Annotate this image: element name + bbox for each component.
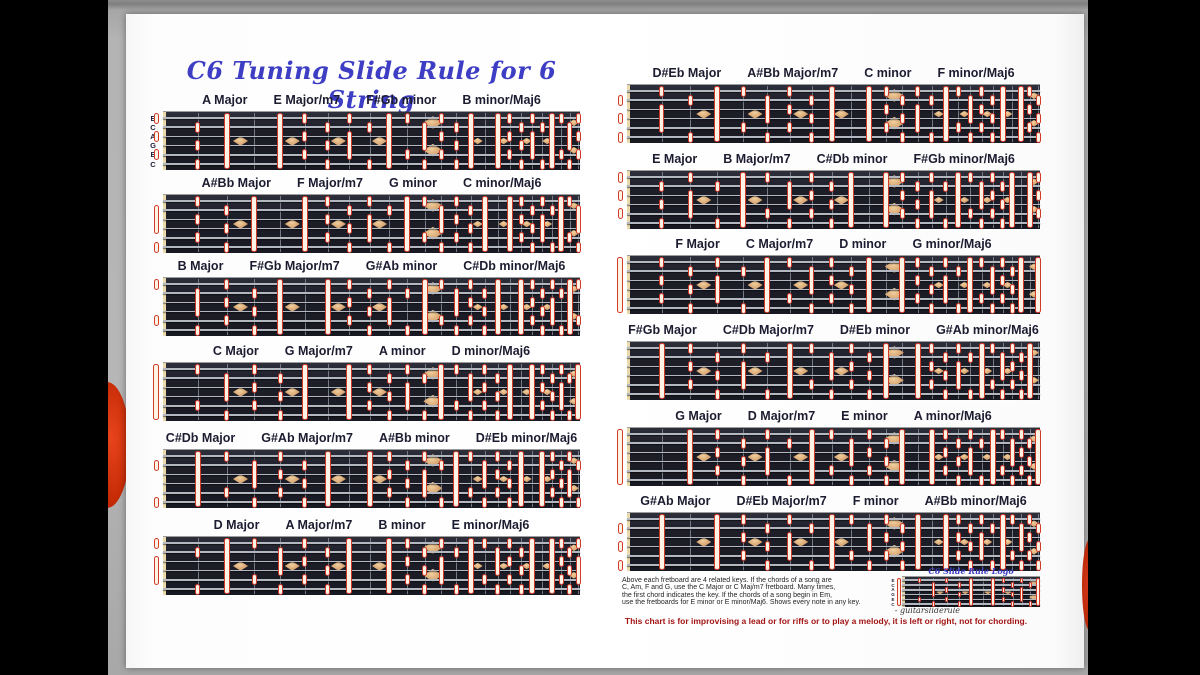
note-marker	[367, 382, 372, 393]
fret-wire	[690, 514, 691, 570]
scale-bar-marker	[883, 172, 889, 228]
note-marker	[540, 288, 545, 299]
note-marker	[387, 469, 392, 480]
note-marker	[550, 451, 555, 462]
note-marker	[195, 232, 200, 243]
chord-label-row: C MajorG Major/m7A minorD minor/Maj6	[163, 344, 580, 358]
fretboard	[163, 112, 580, 170]
fret-wire	[485, 113, 486, 169]
note-marker	[956, 122, 961, 133]
note-marker	[567, 584, 572, 595]
open-string-marker	[618, 541, 623, 552]
note-marker	[915, 257, 920, 268]
note-marker	[405, 364, 410, 375]
note-marker	[302, 131, 307, 142]
scale-bar-marker	[404, 196, 410, 252]
note-marker	[495, 584, 500, 595]
note-marker	[968, 541, 973, 552]
note-marker	[918, 578, 921, 584]
nut	[627, 85, 630, 143]
chord-label: D#Eb minor	[840, 323, 910, 337]
note-marker	[325, 122, 330, 133]
note-marker	[741, 266, 746, 277]
note-marker	[550, 391, 555, 402]
nut	[627, 171, 630, 229]
note-marker	[1010, 361, 1015, 372]
note-marker	[915, 86, 920, 97]
note-marker	[715, 275, 720, 304]
note-marker	[1029, 601, 1032, 607]
chord-label-row: F#Gb MajorC#Db Major/m7D#Eb minorG#Ab mi…	[627, 323, 1040, 337]
note-marker	[741, 303, 746, 314]
note-marker	[519, 122, 524, 133]
note-marker	[979, 181, 984, 210]
note-marker	[559, 574, 564, 585]
note-marker	[809, 266, 814, 295]
note-marker	[829, 275, 834, 286]
note-marker	[849, 284, 854, 295]
note-marker	[550, 279, 555, 290]
note-marker	[943, 218, 948, 229]
note-marker	[867, 352, 872, 363]
inlay-diamond	[473, 563, 483, 570]
nut	[627, 342, 630, 400]
note-marker	[659, 218, 664, 229]
note-marker	[968, 447, 973, 476]
fret-wire	[305, 279, 306, 335]
note-marker	[943, 447, 948, 458]
scale-bar-marker	[1009, 172, 1015, 228]
note-marker	[741, 438, 746, 449]
chord-label: E Major	[652, 152, 697, 166]
scale-bar-marker	[386, 538, 392, 594]
note-marker	[367, 306, 372, 317]
author-signature: - guitarsliderule	[622, 606, 960, 615]
note-marker	[943, 257, 948, 268]
open-string-marker	[618, 172, 623, 183]
chord-label: F#Gb Major/m7	[249, 259, 339, 273]
note-marker	[1036, 541, 1041, 552]
note-marker	[765, 429, 770, 440]
note-marker	[468, 487, 473, 498]
note-marker	[530, 315, 535, 326]
note-marker	[990, 523, 995, 534]
note-marker	[968, 172, 973, 183]
note-marker	[576, 538, 581, 549]
note-marker	[439, 315, 444, 326]
note-marker	[1036, 132, 1041, 143]
note-marker	[956, 456, 961, 467]
note-marker	[325, 196, 330, 207]
chord-label: C#Db Major	[166, 431, 235, 445]
note-marker	[1010, 343, 1015, 354]
note-marker	[439, 113, 444, 124]
scale-bar-marker	[1027, 343, 1033, 399]
note-marker	[367, 159, 372, 170]
note-marker	[482, 364, 487, 375]
note-marker	[422, 232, 427, 243]
note-marker	[454, 122, 459, 133]
note-marker	[507, 556, 512, 567]
scale-bar-marker	[829, 86, 835, 142]
logo-label: C6 Slide Rule Logo	[902, 566, 1040, 576]
scale-bar-marker	[659, 343, 665, 399]
note-marker	[325, 214, 330, 225]
note-marker	[884, 456, 889, 467]
note-marker	[829, 352, 834, 381]
note-marker	[195, 159, 200, 170]
note-marker	[482, 325, 487, 336]
scale-bar-marker	[518, 279, 524, 335]
note-marker	[367, 214, 372, 243]
note-marker	[550, 469, 555, 480]
scale-bar-marker	[969, 578, 973, 606]
inlay-diamond	[473, 138, 483, 145]
note-marker	[990, 190, 995, 201]
note-marker	[567, 410, 572, 421]
note-marker	[195, 547, 200, 558]
note-marker	[849, 266, 854, 277]
note-marker	[688, 379, 693, 390]
note-marker	[715, 181, 720, 192]
note-marker	[688, 190, 693, 219]
note-marker	[224, 297, 229, 308]
chord-label: E minor	[841, 409, 888, 423]
note-marker	[956, 438, 961, 449]
scale-bar-marker	[1018, 86, 1024, 142]
chord-label: C#Db minor/Maj6	[463, 259, 565, 273]
note-marker	[347, 242, 352, 253]
chord-label: A minor/Maj6	[914, 409, 992, 423]
note-marker	[367, 122, 372, 133]
note-marker	[495, 410, 500, 421]
open-string-marker	[154, 315, 159, 326]
note-marker	[884, 475, 889, 486]
note-marker	[540, 382, 545, 393]
note-marker	[405, 460, 410, 471]
scale-bar-marker	[787, 343, 793, 399]
chord-label: G#Ab Major	[640, 494, 710, 508]
note-marker	[1002, 587, 1005, 593]
note-marker	[900, 172, 905, 183]
chord-label: D#Eb Major/m7	[736, 494, 826, 508]
note-marker	[507, 131, 512, 142]
chord-label: D Major/m7	[748, 409, 815, 423]
note-marker	[195, 140, 200, 151]
note-marker	[252, 325, 257, 336]
note-marker	[787, 475, 792, 486]
note-marker	[482, 574, 487, 585]
note-marker	[956, 86, 961, 97]
chord-label: F#Gb Major	[628, 323, 697, 337]
note-marker	[929, 190, 934, 219]
fretboard	[163, 363, 580, 421]
note-marker	[567, 565, 572, 576]
chord-label-row: E MajorB Major/m7C#Db minorF#Gb minor/Ma…	[627, 152, 1040, 166]
note-marker	[979, 122, 984, 133]
note-marker	[932, 601, 935, 607]
note-marker	[482, 306, 487, 317]
note-marker	[559, 460, 564, 471]
note-marker	[482, 538, 487, 549]
note-marker	[347, 315, 352, 326]
note-marker	[979, 475, 984, 486]
scale-bar-marker	[943, 86, 949, 142]
note-marker	[468, 242, 473, 253]
note-marker	[422, 584, 427, 595]
note-marker	[884, 104, 889, 115]
note-marker	[715, 429, 720, 440]
note-marker	[405, 149, 410, 160]
chart-page: C6 Tuning Slide Rule for 6 String A Majo…	[126, 14, 1084, 668]
note-marker	[688, 303, 693, 314]
scale-bar-marker	[346, 538, 352, 594]
note-marker	[659, 293, 664, 304]
fret-wire	[510, 279, 511, 335]
scale-bar-marker	[617, 429, 623, 485]
note-marker	[482, 288, 487, 299]
note-marker	[1010, 438, 1015, 467]
scale-bar-marker	[617, 257, 623, 313]
scale-bar-marker	[687, 429, 693, 485]
note-marker	[567, 159, 572, 170]
note-marker	[900, 113, 905, 124]
fretboard	[627, 171, 1040, 229]
note-marker	[405, 556, 410, 567]
note-marker	[787, 257, 792, 268]
note-marker	[990, 132, 995, 143]
chord-label-row: D MajorA Major/m7B minorE minor/Maj6	[163, 518, 580, 532]
note-marker	[559, 149, 564, 160]
note-marker	[956, 266, 961, 277]
note-marker	[567, 469, 572, 498]
note-marker	[990, 379, 995, 390]
chord-label-row: G#Ab MajorD#Eb Major/m7F minorA#Bb minor…	[627, 494, 1040, 508]
chord-label: D Major	[214, 518, 260, 532]
note-marker	[405, 382, 410, 411]
note-marker	[567, 122, 572, 151]
note-marker	[387, 205, 392, 216]
note-marker	[867, 389, 872, 400]
note-marker	[576, 460, 581, 471]
note-marker	[900, 190, 905, 201]
scale-bar-marker	[1036, 578, 1040, 606]
note-marker	[195, 214, 200, 225]
fret-wire	[662, 429, 663, 485]
note-marker	[787, 532, 792, 561]
note-marker	[252, 460, 257, 489]
note-marker	[468, 223, 473, 234]
note-marker	[454, 196, 459, 207]
note-marker	[224, 242, 229, 253]
note-marker	[968, 389, 973, 400]
note-marker	[968, 132, 973, 143]
note-marker	[809, 132, 814, 143]
scale-bar-marker	[967, 257, 973, 313]
note-marker	[1036, 95, 1041, 106]
note-marker	[540, 159, 545, 170]
note-marker	[884, 438, 889, 449]
note-marker	[849, 438, 854, 467]
note-marker	[468, 451, 473, 462]
scale-bar-marker	[567, 279, 573, 335]
note-marker	[829, 293, 834, 304]
scale-bar-marker	[495, 279, 501, 335]
note-marker	[1000, 389, 1005, 400]
chord-label: D#Eb Major	[652, 66, 721, 80]
note-marker	[900, 208, 905, 219]
note-marker	[252, 288, 257, 299]
note-marker	[550, 373, 555, 384]
note-marker	[787, 514, 792, 525]
note-marker	[1027, 514, 1032, 525]
note-marker	[829, 257, 834, 268]
note-marker	[439, 205, 444, 234]
note-marker	[867, 523, 872, 552]
note-marker	[367, 400, 372, 411]
note-marker	[958, 582, 961, 588]
chord-label-row: B MajorF#Gb Major/m7G#Ab minorC#Db minor…	[163, 259, 580, 273]
note-marker	[809, 560, 814, 571]
chord-label: C#Db minor	[817, 152, 888, 166]
chord-label: A#Bb minor/Maj6	[925, 494, 1027, 508]
note-marker	[530, 205, 535, 216]
note-marker	[765, 132, 770, 143]
note-marker	[387, 391, 392, 402]
note-marker	[405, 538, 410, 549]
note-marker	[849, 343, 854, 354]
note-marker	[943, 370, 948, 381]
open-string-marker	[154, 497, 159, 508]
note-marker	[956, 514, 961, 525]
note-marker	[849, 379, 854, 390]
note-marker	[519, 214, 524, 225]
fret-wire	[1012, 86, 1013, 142]
note-marker	[1036, 208, 1041, 219]
note-marker	[787, 122, 792, 133]
scale-bar-marker	[1035, 429, 1041, 485]
note-marker	[956, 475, 961, 486]
chord-label-row: C#Db MajorG#Ab Major/m7A#Bb minorD#Eb mi…	[163, 431, 580, 445]
note-marker	[347, 113, 352, 124]
note-marker	[990, 343, 995, 354]
chord-label: E Major/m7	[274, 93, 341, 107]
note-marker	[252, 574, 257, 585]
note-marker	[915, 104, 920, 133]
chord-label-row: G MajorD Major/m7E minorA minor/Maj6	[627, 409, 1040, 423]
scale-bar-marker	[1018, 257, 1024, 313]
note-marker	[439, 242, 444, 253]
scale-bar-marker	[740, 172, 746, 228]
note-marker	[519, 159, 524, 170]
note-marker	[540, 400, 545, 411]
open-string-marker	[154, 279, 159, 290]
scale-bar-marker	[991, 578, 995, 606]
note-marker	[849, 475, 854, 486]
note-marker	[1011, 582, 1014, 588]
fretboard	[163, 450, 580, 508]
scale-bar-marker	[575, 364, 581, 420]
note-marker	[325, 584, 330, 595]
note-marker	[454, 232, 459, 243]
note-marker	[530, 223, 535, 234]
scale-bar-marker	[302, 364, 308, 420]
note-marker	[979, 532, 984, 561]
note-marker	[347, 205, 352, 216]
scale-bar-marker	[539, 451, 545, 507]
scale-bar-marker	[386, 113, 392, 169]
note-marker	[405, 288, 410, 299]
note-marker	[325, 547, 330, 558]
note-marker	[195, 122, 200, 133]
scale-bar-marker	[714, 86, 720, 142]
note-marker	[468, 297, 473, 308]
note-marker	[367, 364, 372, 375]
fret-wire	[869, 172, 870, 228]
note-marker	[979, 218, 984, 229]
fretboard	[902, 577, 1040, 607]
fretboard	[627, 428, 1040, 486]
note-marker	[195, 364, 200, 375]
note-marker	[422, 469, 427, 498]
chord-label: B minor	[378, 518, 425, 532]
note-marker	[325, 232, 330, 243]
chord-label: A#Bb minor	[379, 431, 450, 445]
note-marker	[519, 232, 524, 243]
note-marker	[1010, 475, 1015, 486]
note-marker	[979, 104, 984, 115]
note-marker	[867, 447, 872, 458]
note-marker	[252, 382, 257, 393]
chord-label: C Major	[213, 344, 259, 358]
note-marker	[765, 172, 770, 183]
chord-label: F Major	[675, 237, 719, 251]
note-marker	[367, 325, 372, 336]
note-marker	[990, 208, 995, 219]
note-marker	[567, 451, 572, 462]
note-marker	[787, 104, 792, 115]
note-marker	[422, 565, 427, 576]
note-marker	[387, 487, 392, 498]
note-marker	[1019, 447, 1024, 458]
note-marker	[1036, 190, 1041, 201]
note-marker	[439, 131, 444, 142]
note-marker	[195, 584, 200, 595]
fret-wire	[498, 196, 499, 252]
note-marker	[252, 538, 257, 549]
chord-label: E minor/Maj6	[452, 518, 530, 532]
note-marker	[765, 95, 770, 124]
note-marker	[929, 343, 934, 354]
note-marker	[224, 487, 229, 498]
note-marker	[1020, 578, 1023, 584]
note-marker	[809, 343, 814, 354]
note-marker	[482, 382, 487, 393]
note-marker	[990, 95, 995, 106]
note-marker	[559, 497, 564, 508]
note-marker	[979, 86, 984, 97]
scale-bar-marker	[529, 364, 535, 420]
note-marker	[688, 284, 693, 295]
note-marker	[224, 451, 229, 462]
note-marker	[530, 131, 535, 160]
note-marker	[765, 541, 770, 552]
note-marker	[688, 343, 693, 354]
note-marker	[956, 343, 961, 354]
scale-bar-marker	[866, 257, 872, 313]
chord-label: G Major	[675, 409, 722, 423]
note-marker	[422, 159, 427, 170]
